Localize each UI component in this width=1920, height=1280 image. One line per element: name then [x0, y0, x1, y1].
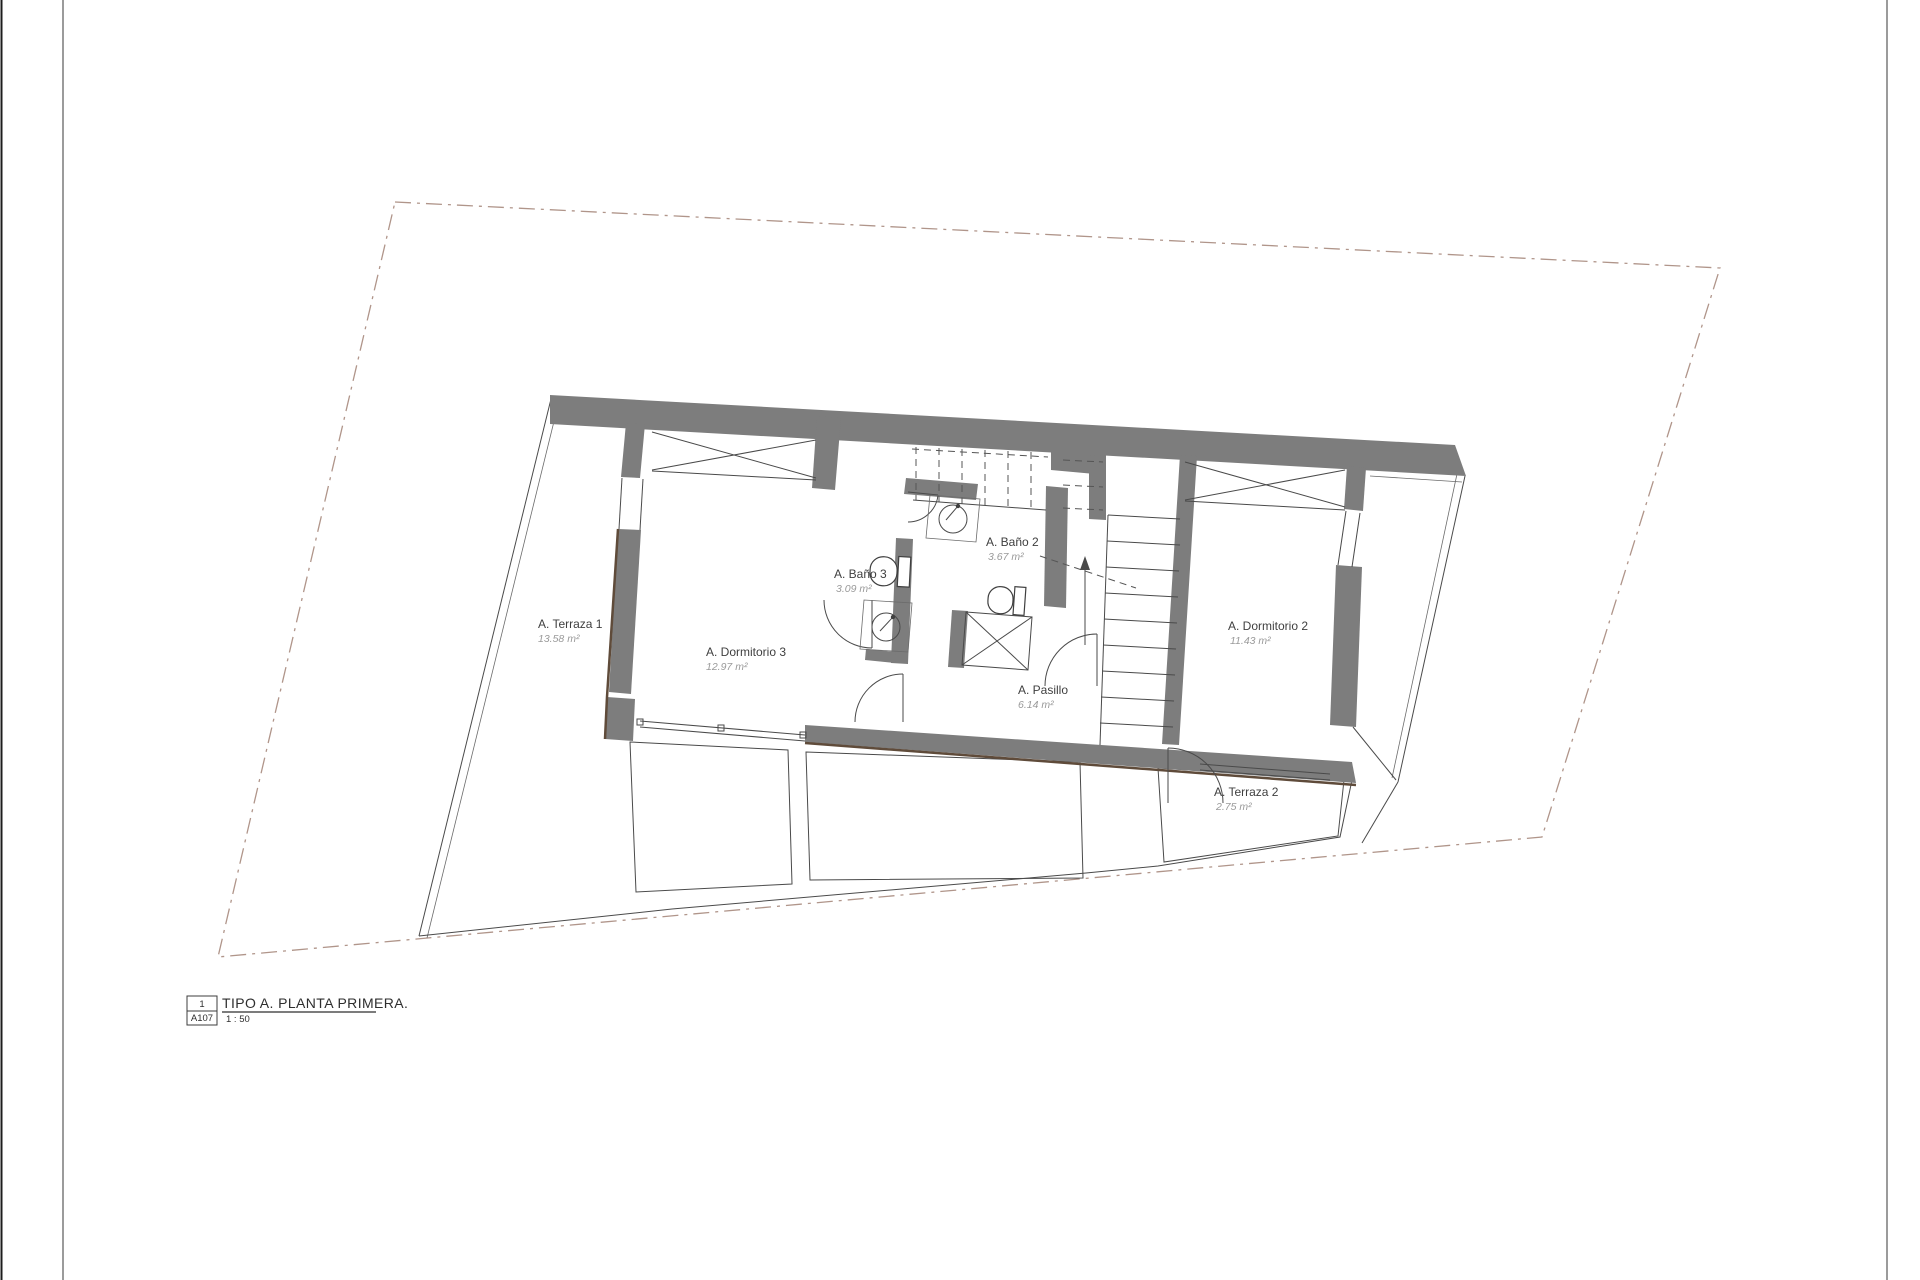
room-area-terraza-2: 2.75 m² [1215, 801, 1252, 813]
room-area-bano-3: 3.09 m² [836, 583, 872, 595]
toilet-bano-2 [987, 585, 1026, 616]
room-label-dormitorio-2: A. Dormitorio 2 [1228, 619, 1308, 633]
room-label-terraza-1: A. Terraza 1 [538, 617, 603, 631]
title-block: 1 A107 TIPO A. PLANTA PRIMERA. 1 : 50 [187, 995, 408, 1025]
room-label-dormitorio-3: A. Dormitorio 3 [706, 645, 786, 659]
room-label-bano-3: A. Baño 3 [834, 567, 887, 581]
room-area-bano-2: 3.67 m² [988, 551, 1024, 563]
room-label-pasillo: A. Pasillo [1018, 683, 1068, 697]
site-boundary [218, 202, 1720, 957]
room-label-terraza-2: A. Terraza 2 [1214, 785, 1279, 799]
room-area-dormitorio-3: 12.97 m² [706, 661, 748, 673]
detail-number: 1 [199, 999, 204, 1010]
service-shaft [962, 612, 1032, 670]
door-dormitorio-3 [855, 674, 903, 722]
drawing-title: TIPO A. PLANTA PRIMERA. [222, 995, 408, 1011]
drawing-scale: 1 : 50 [226, 1014, 250, 1025]
room-area-dormitorio-2: 11.43 m² [1230, 635, 1271, 647]
door-pasillo [1045, 634, 1097, 686]
door-bano-2 [908, 492, 938, 522]
terrace-outlines [419, 399, 1465, 938]
sheet-code: A107 [191, 1013, 213, 1024]
drawing-sheet: A. Terraza 1 13.58 m² A. Dormitorio 3 12… [0, 0, 1920, 1280]
stair-direction-arrow [1080, 556, 1090, 645]
door-bano-3 [824, 600, 872, 648]
room-area-terraza-1: 13.58 m² [538, 633, 580, 645]
room-label-bano-2: A. Baño 2 [986, 535, 1039, 549]
room-area-pasillo: 6.14 m² [1018, 699, 1054, 711]
room-labels: A. Terraza 1 13.58 m² A. Dormitorio 3 12… [538, 535, 1308, 813]
